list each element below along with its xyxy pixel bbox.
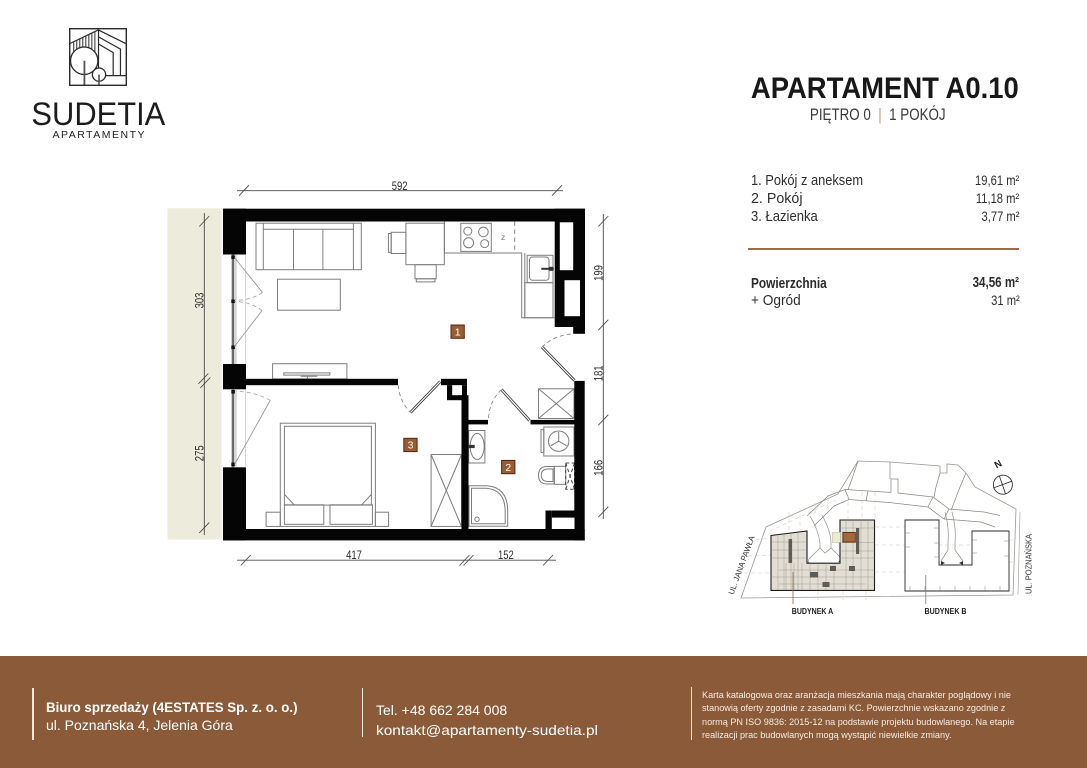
svg-text:1: 1 [455,326,461,338]
svg-text:z: z [501,232,505,242]
svg-text:592: 592 [392,179,408,193]
svg-text:UL. POZNAŃSKA: UL. POZNAŃSKA [1025,533,1034,594]
svg-text:BUDYNEK B: BUDYNEK B [925,606,967,616]
svg-text:3: 3 [408,440,414,452]
svg-text:275: 275 [193,445,207,461]
svg-text:417: 417 [346,548,362,562]
svg-text:N: N [993,458,1004,471]
svg-text:UL. JANA PAWŁA: UL. JANA PAWŁA [727,534,757,596]
svg-text:199: 199 [592,265,606,281]
svg-text:181: 181 [592,365,606,381]
svg-text:2: 2 [505,462,511,474]
svg-text:152: 152 [498,548,514,562]
svg-text:166: 166 [592,460,606,476]
svg-text:303: 303 [193,292,207,308]
svg-text:BUDYNEK A: BUDYNEK A [792,606,834,616]
